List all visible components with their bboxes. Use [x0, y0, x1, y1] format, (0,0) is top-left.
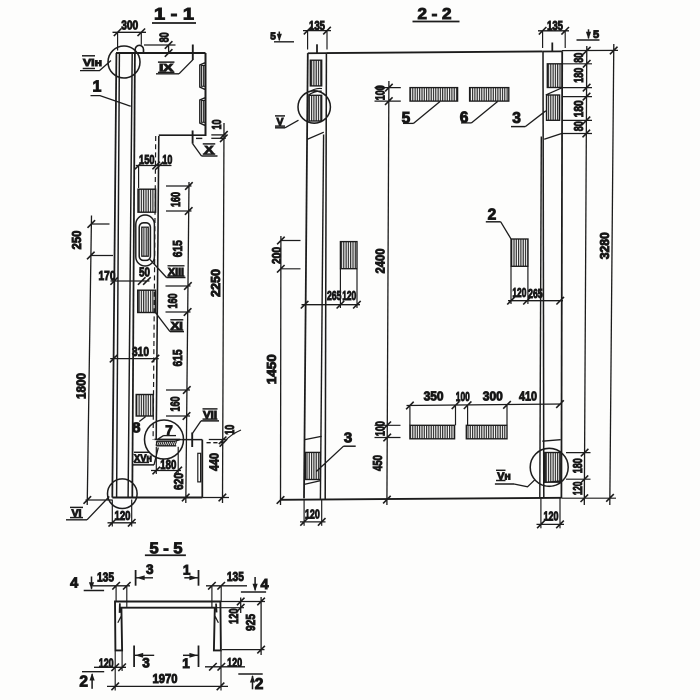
svg-text:80: 80: [571, 53, 586, 63]
svg-text:310: 310: [132, 344, 149, 359]
svg-text:1 - 1: 1 - 1: [154, 5, 194, 24]
svg-text:135: 135: [227, 569, 244, 584]
svg-text:180: 180: [571, 100, 586, 117]
svg-text:350: 350: [424, 389, 444, 404]
svg-text:120: 120: [226, 608, 241, 624]
svg-text:1: 1: [183, 562, 191, 577]
svg-text:1: 1: [182, 656, 190, 671]
svg-text:8: 8: [132, 419, 140, 436]
svg-text:10: 10: [209, 120, 224, 130]
svg-text:2 - 2: 2 - 2: [418, 6, 452, 23]
svg-text:3: 3: [146, 562, 154, 577]
svg-text:3280: 3280: [597, 232, 612, 259]
svg-text:120: 120: [570, 482, 585, 496]
svg-text:120: 120: [544, 508, 559, 523]
svg-text:1450: 1450: [264, 354, 279, 384]
svg-text:170: 170: [99, 268, 116, 283]
svg-text:250: 250: [69, 231, 84, 250]
svg-text:160: 160: [168, 397, 183, 412]
svg-text:180: 180: [571, 68, 586, 83]
svg-text:120: 120: [512, 285, 526, 300]
svg-text:2: 2: [488, 207, 497, 224]
svg-text:410: 410: [519, 388, 537, 403]
svg-text:100: 100: [373, 85, 388, 100]
svg-text:5: 5: [270, 32, 276, 43]
svg-text:180: 180: [570, 458, 585, 473]
svg-text:440: 440: [207, 453, 222, 471]
svg-text:4: 4: [260, 577, 268, 593]
svg-text:6: 6: [460, 110, 469, 127]
svg-text:3: 3: [512, 110, 521, 127]
svg-text:3: 3: [344, 429, 352, 446]
svg-text:2: 2: [255, 676, 264, 693]
svg-text:300: 300: [121, 17, 138, 32]
svg-text:80: 80: [156, 32, 171, 42]
svg-text:100: 100: [456, 389, 470, 404]
svg-text:265: 265: [528, 286, 543, 301]
svg-text:300: 300: [483, 389, 503, 404]
svg-text:3: 3: [142, 655, 150, 670]
svg-text:120: 120: [227, 655, 242, 670]
svg-text:925: 925: [243, 614, 258, 631]
svg-text:120: 120: [115, 508, 131, 523]
svg-text:1800: 1800: [74, 373, 89, 399]
svg-text:80: 80: [571, 121, 586, 131]
svg-text:100: 100: [372, 421, 387, 436]
svg-text:2250: 2250: [208, 269, 223, 297]
svg-text:160: 160: [165, 294, 180, 309]
svg-text:265: 265: [327, 288, 342, 303]
svg-text:120: 120: [99, 655, 114, 670]
svg-text:450: 450: [370, 455, 385, 471]
svg-text:5: 5: [593, 29, 599, 41]
svg-text:160: 160: [168, 192, 183, 207]
svg-text:615: 615: [170, 240, 185, 257]
svg-text:120: 120: [342, 288, 356, 303]
svg-text:1970: 1970: [153, 671, 178, 686]
svg-text:4: 4: [70, 576, 78, 592]
svg-text:2400: 2400: [372, 249, 387, 274]
svg-text:1: 1: [93, 79, 102, 96]
svg-text:135: 135: [97, 570, 114, 585]
svg-text:2: 2: [79, 674, 88, 691]
svg-text:5: 5: [402, 110, 411, 127]
svg-text:VIн: VIн: [83, 57, 102, 69]
svg-text:615: 615: [170, 350, 185, 367]
svg-text:620: 620: [171, 473, 186, 490]
svg-text:200: 200: [269, 247, 284, 264]
